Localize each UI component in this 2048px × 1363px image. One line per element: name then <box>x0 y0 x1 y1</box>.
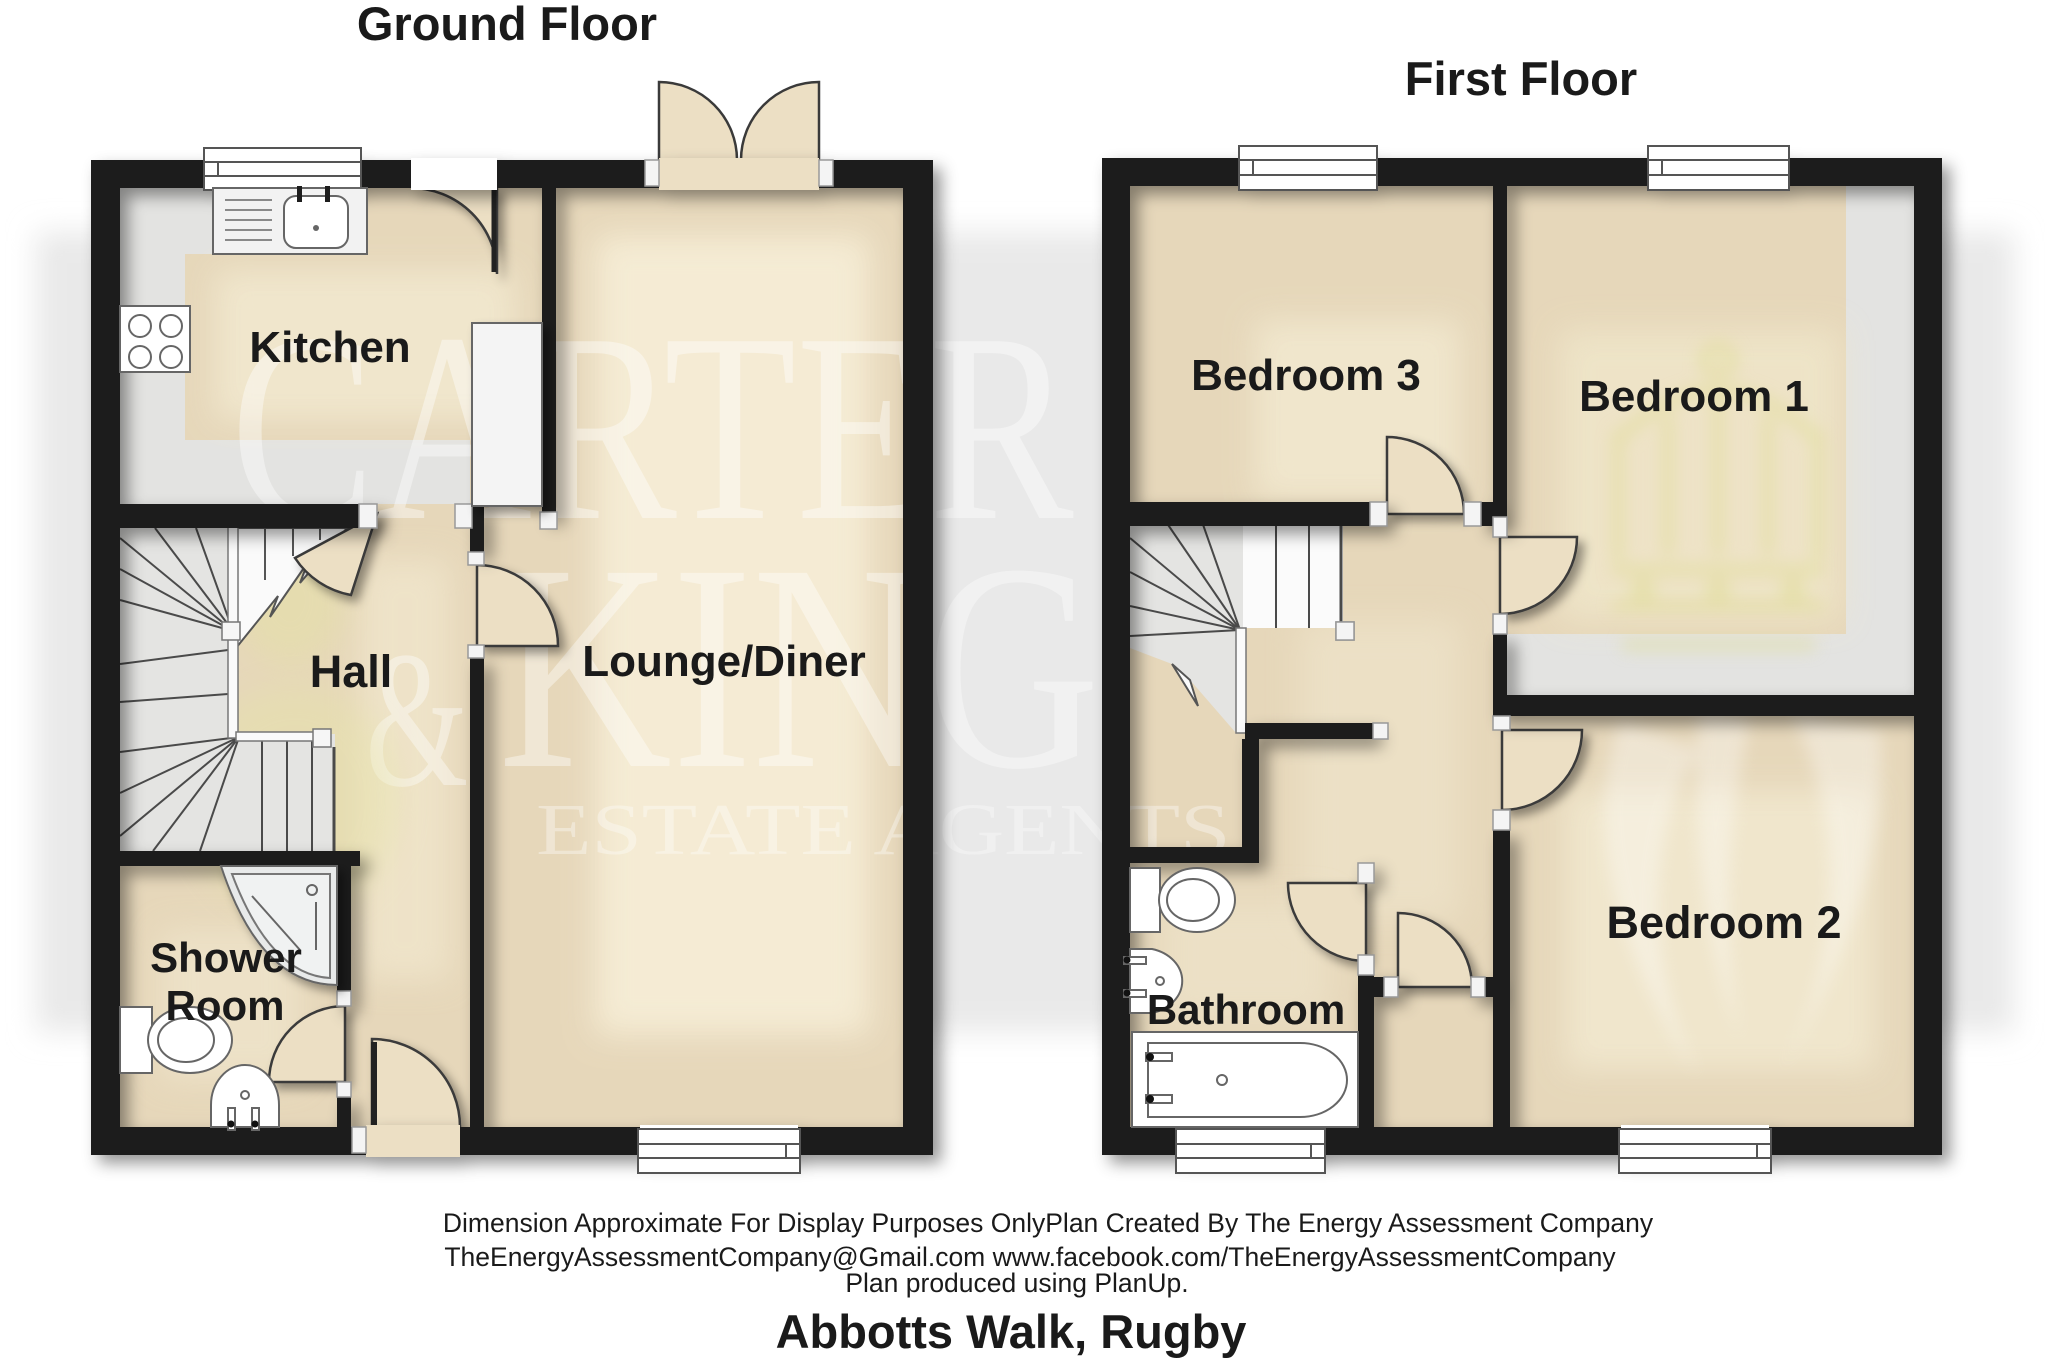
svg-text:Bathroom: Bathroom <box>1147 986 1345 1033</box>
svg-text:Dimension Approximate For Disp: Dimension Approximate For Display Purpos… <box>443 1208 1654 1238</box>
svg-text:Ground Floor: Ground Floor <box>357 0 657 50</box>
svg-text:First Floor: First Floor <box>1405 52 1637 105</box>
svg-text:Room: Room <box>166 982 285 1029</box>
svg-text:Kitchen: Kitchen <box>249 323 410 372</box>
svg-text:Plan produced using PlanUp.: Plan produced using PlanUp. <box>845 1268 1188 1298</box>
svg-text:Lounge/Diner: Lounge/Diner <box>582 637 866 686</box>
svg-text:Bedroom 2: Bedroom 2 <box>1606 897 1841 948</box>
svg-text:Bedroom 1: Bedroom 1 <box>1579 372 1809 421</box>
svg-text:Bedroom 3: Bedroom 3 <box>1191 351 1421 400</box>
svg-text:Shower: Shower <box>150 934 302 981</box>
svg-text:Abbotts Walk, Rugby: Abbotts Walk, Rugby <box>776 1305 1247 1358</box>
svg-text:Hall: Hall <box>310 646 393 697</box>
